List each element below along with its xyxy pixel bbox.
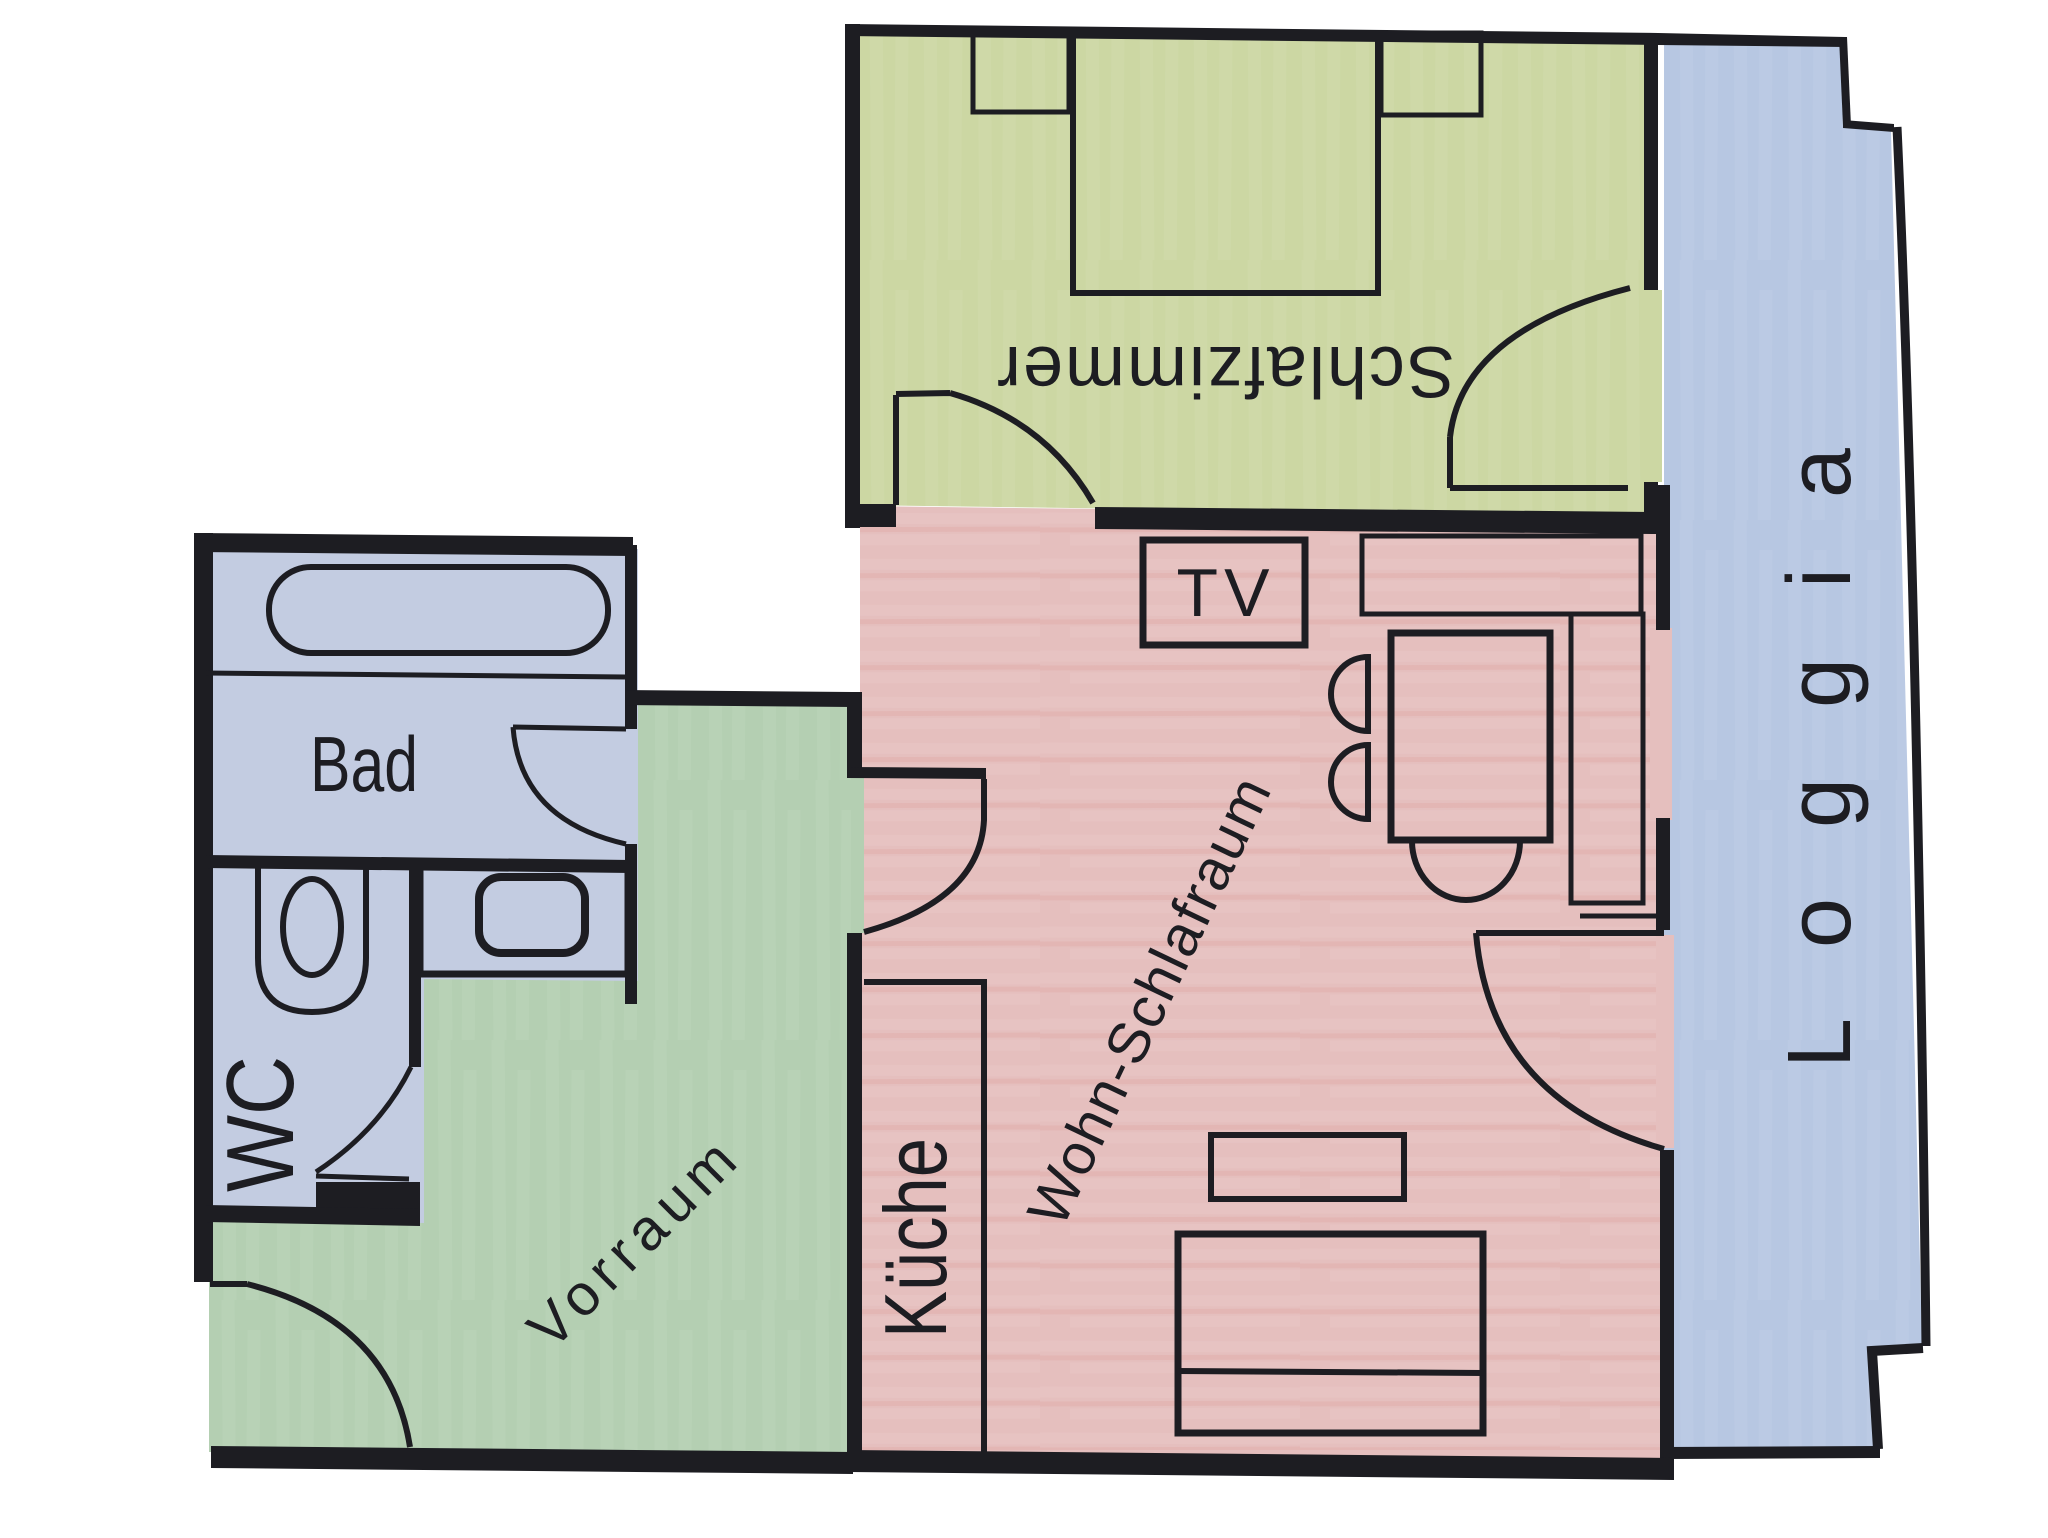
svg-text:WC: WC [207, 1056, 314, 1192]
svg-text:TV: TV [1177, 555, 1276, 631]
svg-text:Küche: Küche [866, 1138, 965, 1338]
svg-text:Bad: Bad [310, 720, 418, 808]
svg-text:Schlafzimmer: Schlafzimmer [997, 331, 1455, 411]
